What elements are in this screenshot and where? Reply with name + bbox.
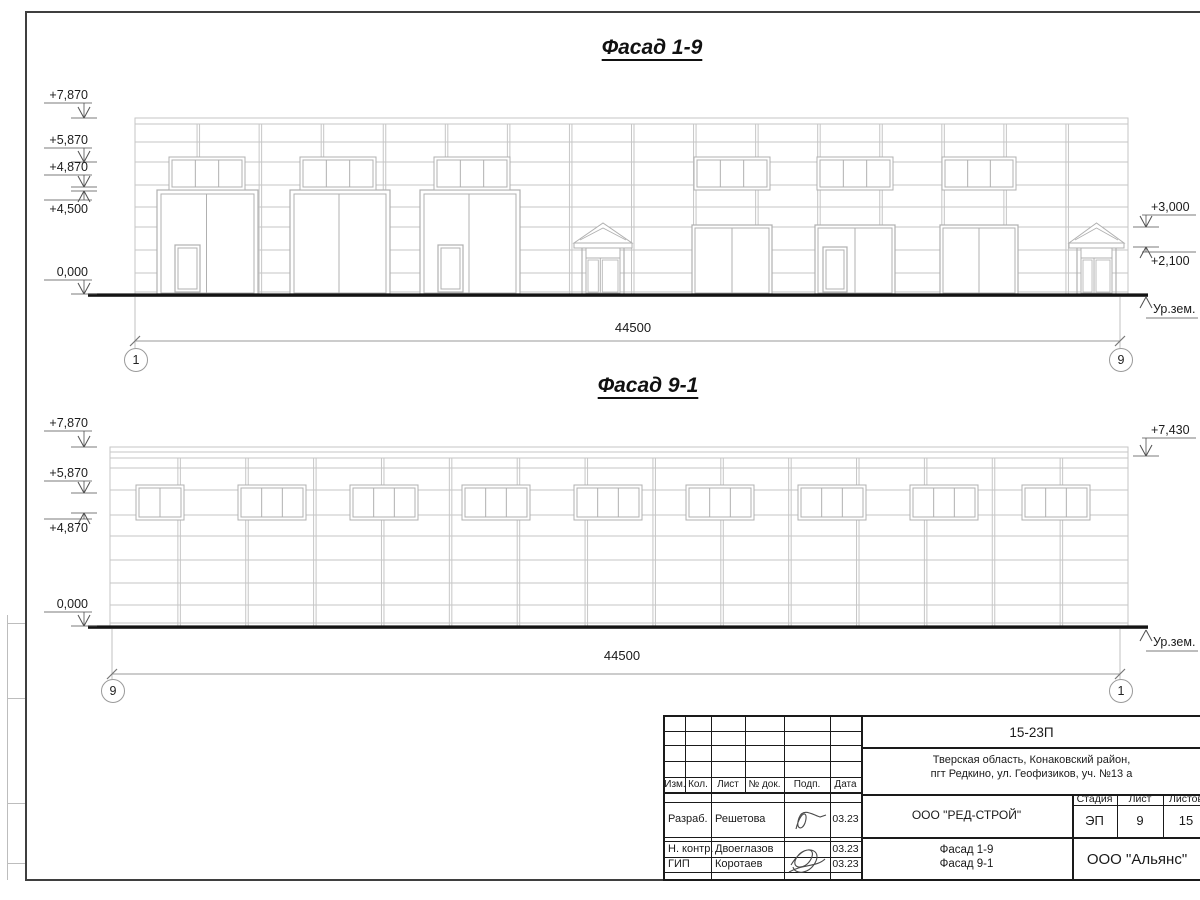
elevation-label: +4,870: [36, 521, 88, 535]
axis-bubble-9b: 9: [101, 679, 125, 703]
elevation-label: +7,870: [36, 88, 88, 102]
margin-strip-div: [7, 623, 25, 624]
axis-bubble-1b: 1: [1109, 679, 1133, 703]
facade-1-9-title: Фасад 1-9: [532, 36, 772, 60]
ground-level-label: Ур.зем.: [1153, 635, 1200, 649]
facade1-overall-dimension: 44500: [603, 320, 663, 335]
facade-9-1-title: Фасад 9-1: [528, 374, 768, 398]
frame-left: [25, 11, 27, 881]
frame-top: [25, 11, 1200, 13]
ground-level-label: Ур.зем.: [1153, 302, 1200, 316]
elevation-label: +5,870: [36, 466, 88, 480]
margin-strip-line: [7, 615, 8, 880]
margin-strip-div: [7, 698, 25, 699]
elevation-label: +2,100: [1151, 254, 1199, 268]
facade2-overall-dimension: 44500: [592, 648, 652, 663]
title-block: 15-23П Тверская область, Конаковский рай…: [663, 715, 1200, 881]
elevation-label: 0,000: [36, 597, 88, 611]
axis-bubble-9: 9: [1109, 348, 1133, 372]
elevation-label: +5,870: [36, 133, 88, 147]
margin-strip-div: [7, 803, 25, 804]
elevation-label: +4,870: [36, 160, 88, 174]
drawing-sheet: Фасад 1-9 Фасад 9-1 44500 44500 1 9 9 1: [0, 0, 1200, 900]
elevation-label: 0,000: [36, 265, 88, 279]
signatures: [665, 717, 1200, 881]
elevation-label: +3,000: [1151, 200, 1199, 214]
axis-bubble-1: 1: [124, 348, 148, 372]
elevation-label: +7,430: [1151, 423, 1199, 437]
elevation-label: +7,870: [36, 416, 88, 430]
margin-strip-div: [7, 863, 25, 864]
elevation-label: +4,500: [36, 202, 88, 216]
